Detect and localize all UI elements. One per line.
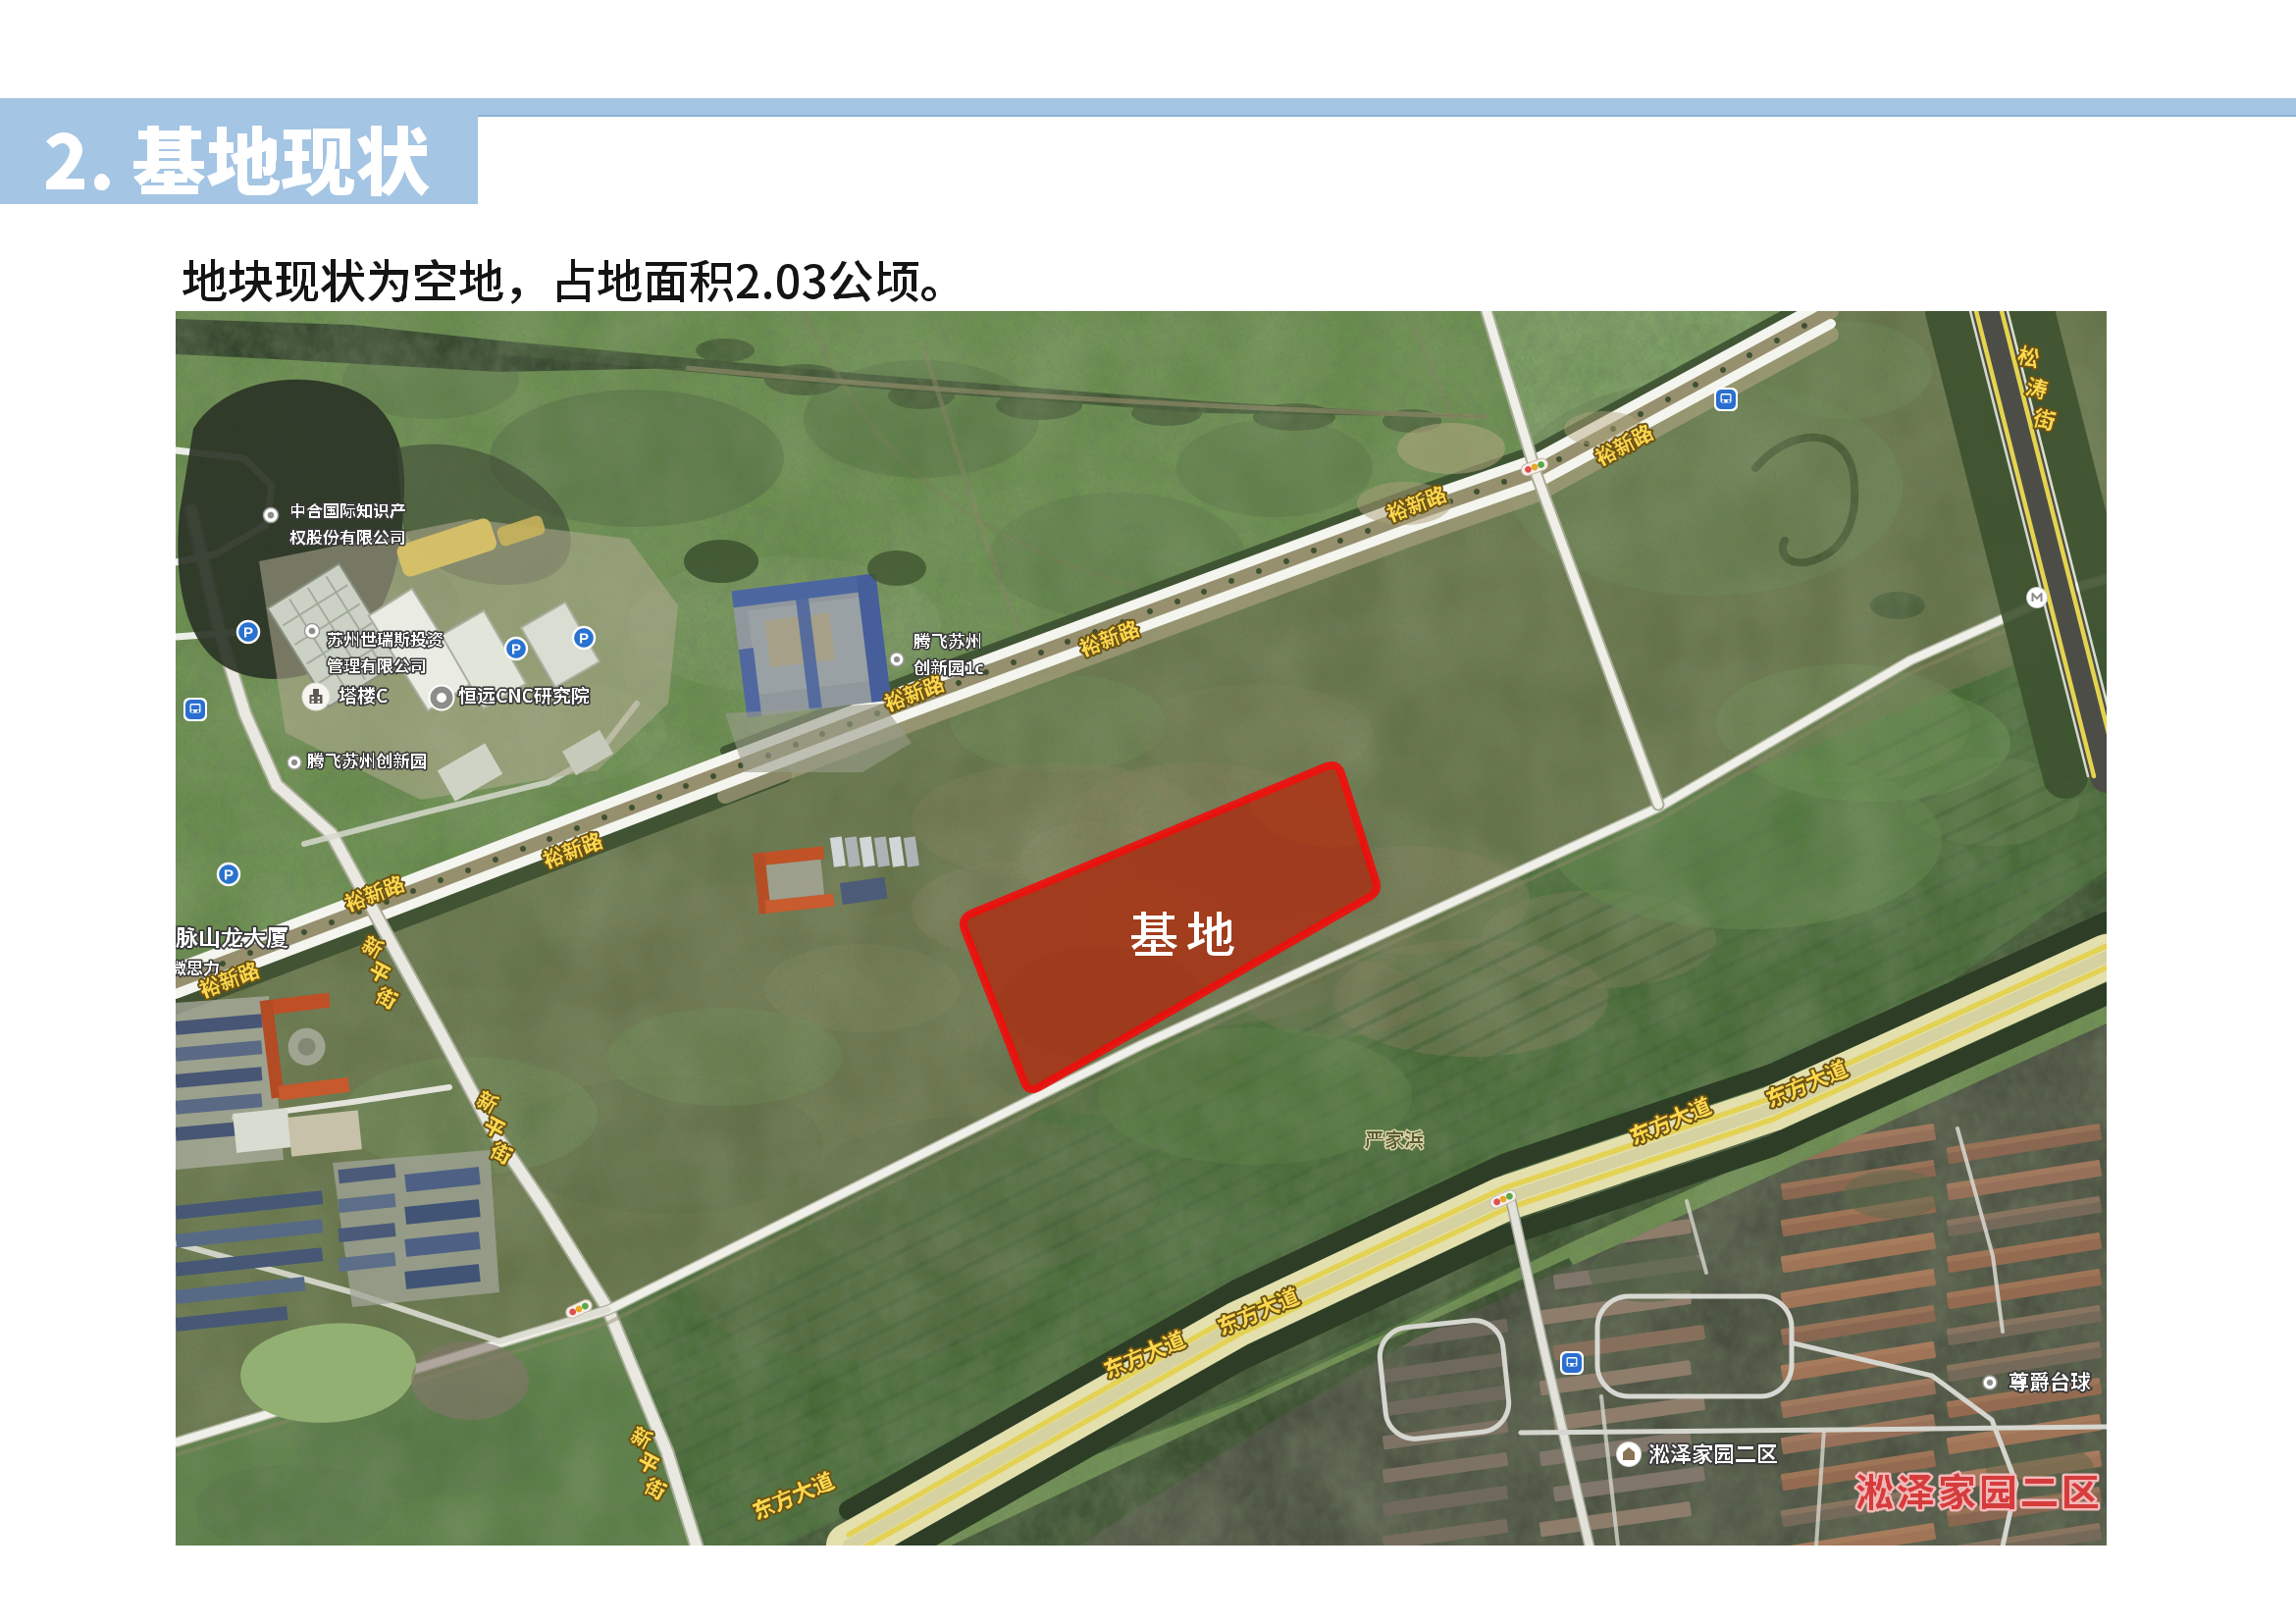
svg-text:P: P bbox=[243, 625, 253, 642]
svg-text:P: P bbox=[224, 867, 234, 884]
svg-text:P: P bbox=[579, 631, 589, 648]
svg-text:P: P bbox=[511, 642, 521, 658]
